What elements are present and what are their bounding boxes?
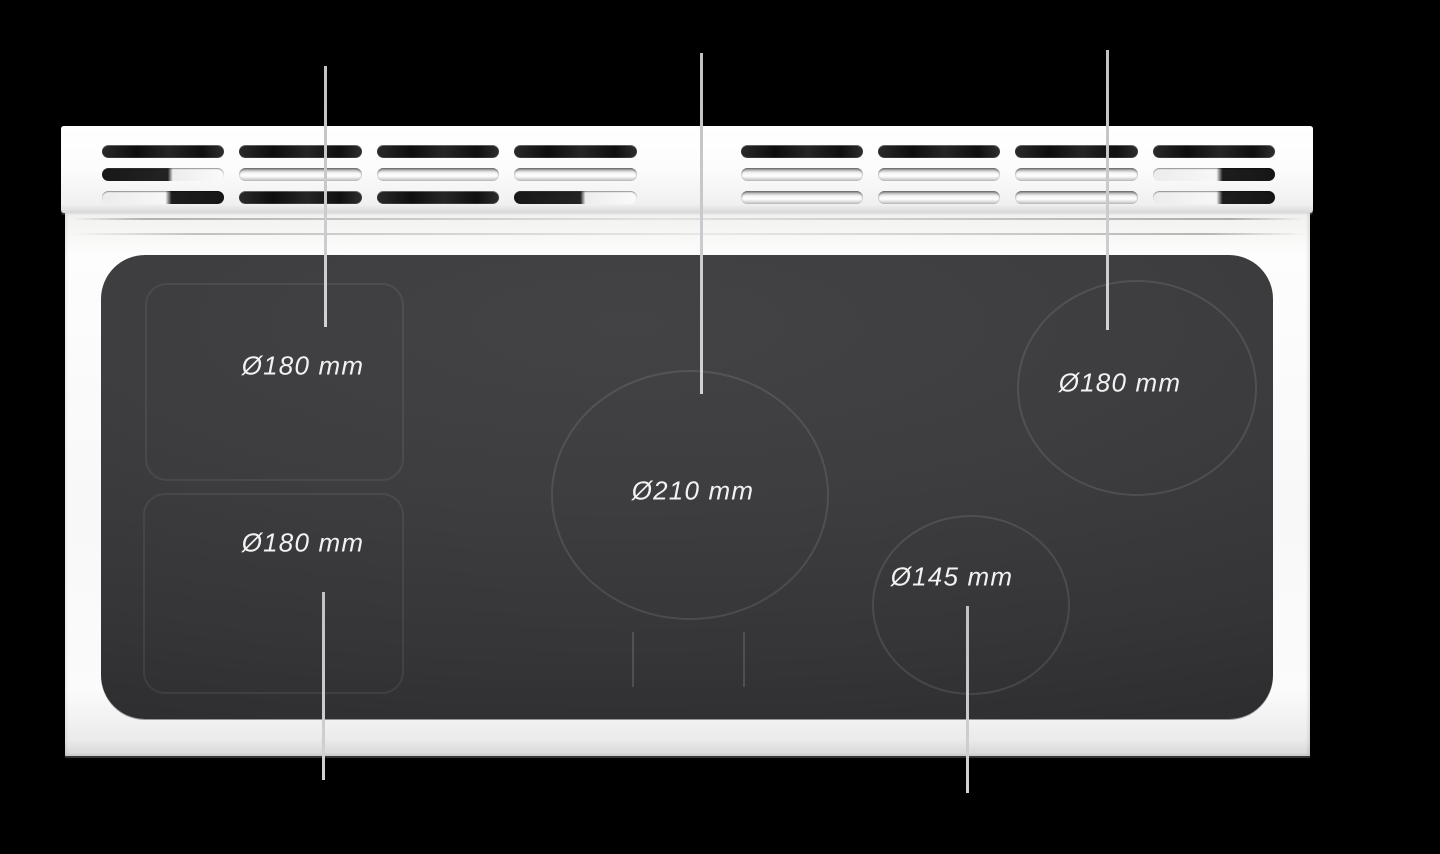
vent-slot bbox=[1015, 145, 1137, 158]
vent-slot bbox=[878, 168, 1000, 181]
ceramic-glass-surface: Ø180 mm Ø180 mm Ø210 mm Ø180 mm Ø145 mm bbox=[101, 255, 1273, 719]
vent-slot-group bbox=[878, 145, 1000, 204]
vent-slot-group bbox=[741, 145, 863, 204]
vent-slot-group bbox=[239, 145, 361, 204]
vent-slot bbox=[102, 145, 224, 158]
flex-zone-outline-top bbox=[145, 283, 404, 481]
vent-slot bbox=[102, 168, 224, 181]
vent-slot bbox=[239, 191, 361, 204]
cooktop-frame: Ø180 mm Ø180 mm Ø210 mm Ø180 mm Ø145 mm bbox=[65, 213, 1310, 756]
vent-slot bbox=[514, 168, 636, 181]
leader-line-center bbox=[700, 53, 703, 394]
scene: Ø180 mm Ø180 mm Ø210 mm Ø180 mm Ø145 mm bbox=[0, 0, 1440, 854]
vent-row bbox=[102, 145, 1275, 204]
vent-slot bbox=[1153, 191, 1275, 204]
burner-label-center: Ø210 mm bbox=[632, 476, 755, 507]
vent-slot-group bbox=[377, 145, 499, 204]
leader-line-left-flex-bottom bbox=[322, 592, 325, 780]
leader-line-left-flex-top bbox=[324, 66, 327, 327]
vent-slot-group bbox=[1153, 145, 1275, 204]
vent-slot-group bbox=[102, 145, 224, 204]
zone-divider-tick bbox=[743, 632, 745, 687]
vent-slot bbox=[377, 168, 499, 181]
vent-slot bbox=[102, 191, 224, 204]
vent-slot bbox=[377, 191, 499, 204]
vent-slot bbox=[1015, 191, 1137, 204]
frame-seam-line bbox=[71, 218, 1304, 220]
zone-divider-tick bbox=[632, 632, 634, 687]
vent-slot bbox=[1153, 145, 1275, 158]
vent-slot bbox=[1153, 168, 1275, 181]
vent-slot bbox=[377, 145, 499, 158]
vent-slot-group bbox=[1015, 145, 1137, 204]
flex-zone-outline-bottom bbox=[143, 493, 404, 694]
burner-label-right-top: Ø180 mm bbox=[1059, 368, 1182, 399]
vent-slot bbox=[741, 145, 863, 158]
vent-slot bbox=[878, 145, 1000, 158]
burner-outline-right-bottom bbox=[872, 515, 1070, 695]
vent-slot bbox=[1015, 168, 1137, 181]
vent-slot-group bbox=[514, 145, 636, 204]
burner-label-right-bottom: Ø145 mm bbox=[891, 562, 1014, 593]
frame-seam-line bbox=[71, 233, 1304, 235]
vent-slot bbox=[514, 191, 636, 204]
vent-slot bbox=[239, 145, 361, 158]
leader-line-right-top bbox=[1106, 50, 1109, 330]
leader-line-right-bottom bbox=[966, 606, 969, 793]
vent-slot bbox=[741, 168, 863, 181]
vent-slot bbox=[878, 191, 1000, 204]
burner-label-left-flex-bottom: Ø180 mm bbox=[242, 528, 365, 559]
vent-slot bbox=[514, 145, 636, 158]
vent-grille bbox=[61, 126, 1313, 213]
vent-slot bbox=[741, 191, 863, 204]
vent-slot bbox=[239, 168, 361, 181]
burner-label-left-flex-top: Ø180 mm bbox=[242, 351, 365, 382]
